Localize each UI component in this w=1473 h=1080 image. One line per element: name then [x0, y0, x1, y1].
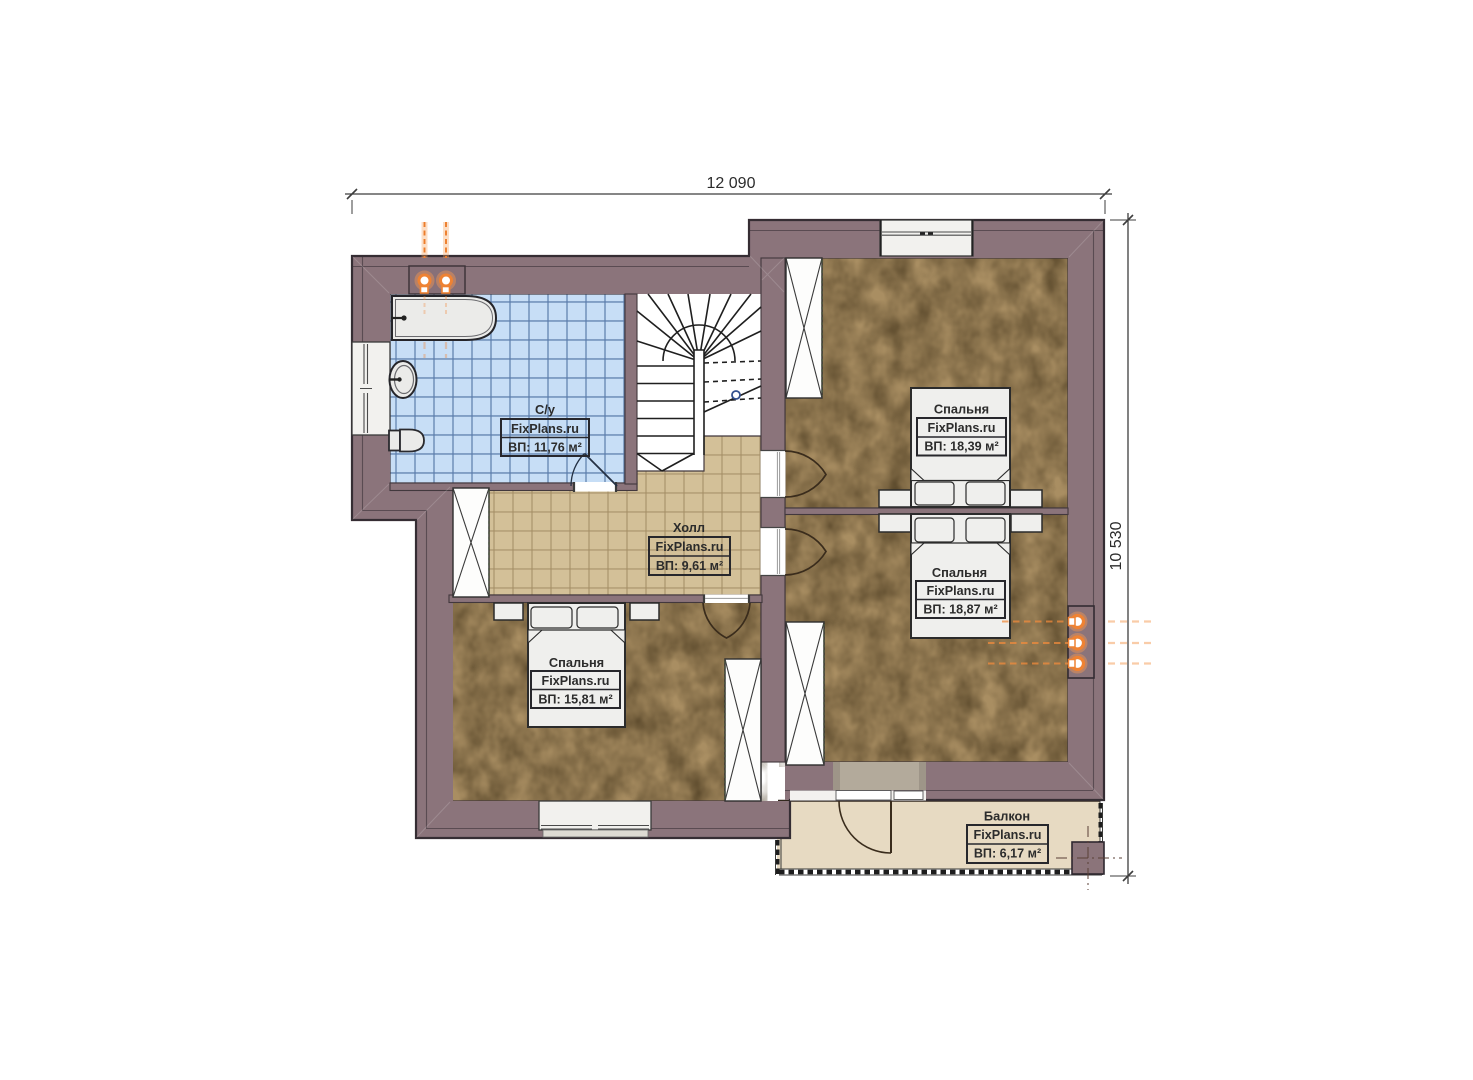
svg-text:FixPlans.ru: FixPlans.ru — [974, 828, 1042, 842]
svg-text:С/у: С/у — [535, 402, 556, 417]
svg-text:ВП: 18,39 м²: ВП: 18,39 м² — [924, 440, 998, 454]
svg-text:Спальня: Спальня — [549, 655, 604, 670]
svg-text:Холл: Холл — [673, 520, 705, 535]
svg-text:ВП: 11,76 м²: ВП: 11,76 м² — [508, 441, 582, 455]
svg-text:ВП: 18,87 м²: ВП: 18,87 м² — [923, 603, 997, 617]
svg-text:FixPlans.ru: FixPlans.ru — [927, 584, 995, 598]
svg-text:Балкон: Балкон — [984, 809, 1030, 824]
svg-text:FixPlans.ru: FixPlans.ru — [656, 540, 724, 554]
svg-text:FixPlans.ru: FixPlans.ru — [511, 422, 579, 436]
svg-text:ВП: 9,61 м²: ВП: 9,61 м² — [656, 559, 723, 573]
svg-text:10 530: 10 530 — [1108, 521, 1125, 570]
svg-text:Спальня: Спальня — [934, 402, 989, 417]
svg-text:ВП: 6,17 м²: ВП: 6,17 м² — [974, 847, 1041, 861]
svg-text:FixPlans.ru: FixPlans.ru — [928, 421, 996, 435]
svg-text:FixPlans.ru: FixPlans.ru — [542, 674, 610, 688]
svg-text:ВП: 15,81 м²: ВП: 15,81 м² — [538, 693, 612, 707]
svg-text:Спальня: Спальня — [932, 565, 987, 580]
svg-text:12 090: 12 090 — [707, 175, 756, 192]
